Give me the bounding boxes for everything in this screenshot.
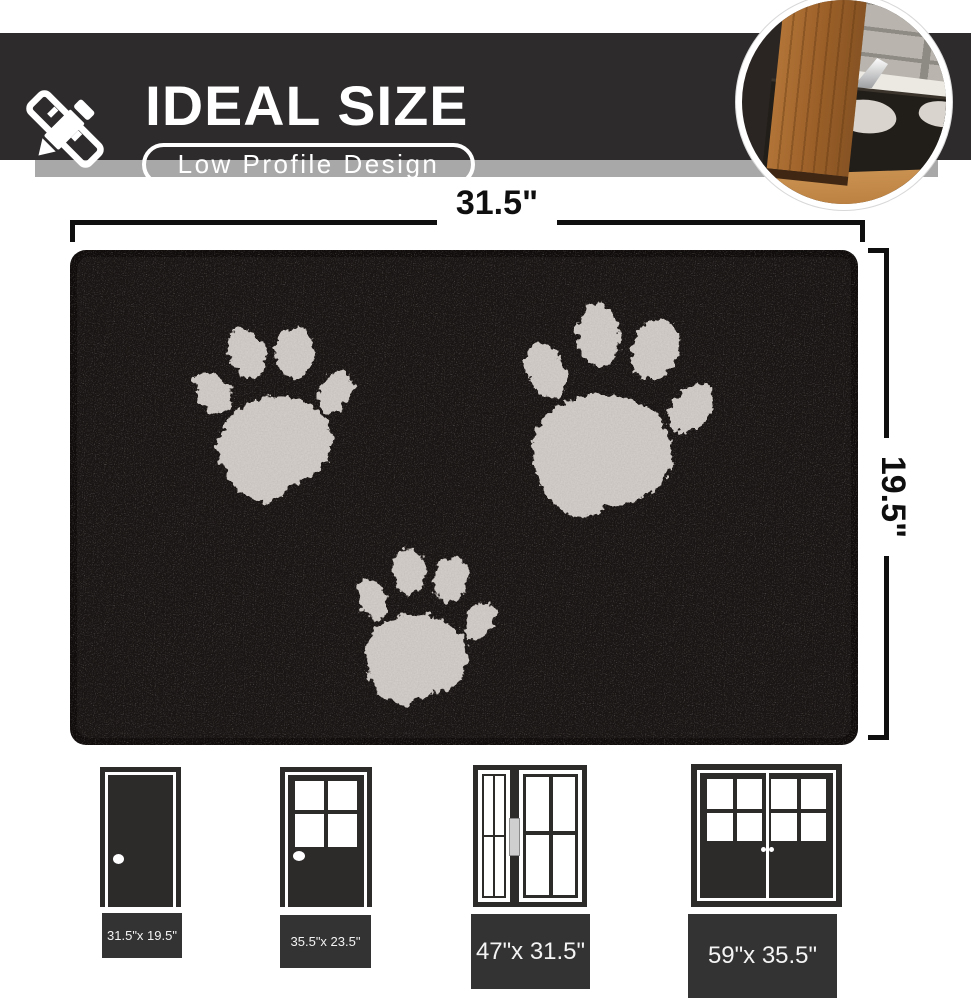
double-door-illustration [691, 764, 842, 907]
double-door-leaves [700, 773, 833, 898]
size-plate-3: 47"x 31.5" [471, 914, 590, 989]
photo-mat-pattern [917, 97, 952, 132]
double-door-knob-right [769, 847, 774, 852]
size-label-2: 35.5"x 23.5" [291, 934, 361, 949]
width-dim-label: 31.5" [437, 184, 557, 223]
headline: IDEAL SIZE [145, 73, 716, 138]
single-door-panel [108, 775, 173, 907]
half-glass-door-illustration [280, 767, 372, 907]
size-label-1: 31.5"x 19.5" [107, 928, 177, 943]
width-dim-line-left [72, 220, 437, 225]
half-glass-door-window [295, 781, 357, 847]
sliding-door-handle [509, 818, 520, 856]
size-label-3: 47"x 31.5" [476, 938, 585, 966]
product-size-infographic: IDEAL SIZE Low Profile Design 31.5" 19.5… [0, 0, 971, 1000]
low-profile-badge: Low Profile Design [142, 143, 475, 186]
height-dim-tick-bottom [868, 735, 889, 740]
badge-label: Low Profile Design [178, 149, 440, 180]
double-door-knob-left [761, 847, 766, 852]
doormat-illustration [70, 250, 858, 745]
height-dim-line-bottom [884, 556, 889, 740]
double-door-split [766, 773, 769, 898]
sliding-door-illustration [473, 765, 587, 907]
height-dim-label: 19.5" [871, 427, 915, 567]
single-door-illustration [100, 767, 181, 907]
size-label-4: 59"x 35.5" [708, 942, 817, 970]
double-door-window-left [707, 779, 762, 841]
sliding-door-glass-panel [523, 774, 578, 898]
half-glass-door-panel [288, 775, 364, 907]
single-door-knob [113, 854, 124, 864]
doormat-graphic [70, 250, 858, 745]
width-dim-tick-right [860, 220, 865, 242]
door-clearance-photo [736, 0, 952, 210]
size-plate-1: 31.5"x 19.5" [102, 913, 182, 958]
double-door-window-right [771, 779, 826, 841]
width-dim-line-right [557, 220, 863, 225]
size-plate-4: 59"x 35.5" [688, 914, 837, 998]
height-dim-line-top [884, 248, 889, 438]
size-plate-2: 35.5"x 23.5" [280, 915, 371, 968]
sliding-door-fixed-panel [482, 774, 506, 898]
pencil-ruler-icon [20, 83, 110, 175]
half-glass-door-knob [293, 851, 305, 861]
